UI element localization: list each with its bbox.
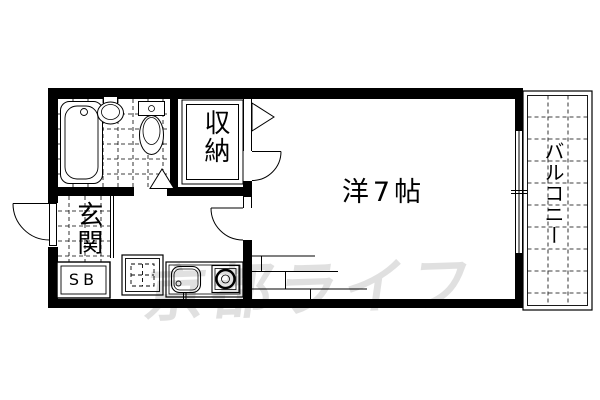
entrance-label: 玄関	[72, 201, 102, 257]
corridor-door-swing	[211, 208, 243, 240]
shoe-box-label: SB	[57, 262, 110, 298]
balcony-label: バルコニー	[541, 141, 564, 246]
entrance-door-swing	[13, 204, 57, 246]
bathtub	[61, 102, 103, 184]
floor-plan: 洋7帖 収納 玄関 SB バルコニー 京都ライフ	[0, 0, 600, 400]
watermark-text: 京都ライフ	[140, 250, 482, 330]
closet-label: 収納	[199, 109, 229, 165]
entrance-step-edge	[111, 196, 114, 258]
toilet	[139, 102, 165, 155]
wash-basin	[98, 97, 124, 125]
closet-folding-door-marker	[252, 103, 274, 131]
room-label: 洋7帖	[252, 177, 515, 208]
